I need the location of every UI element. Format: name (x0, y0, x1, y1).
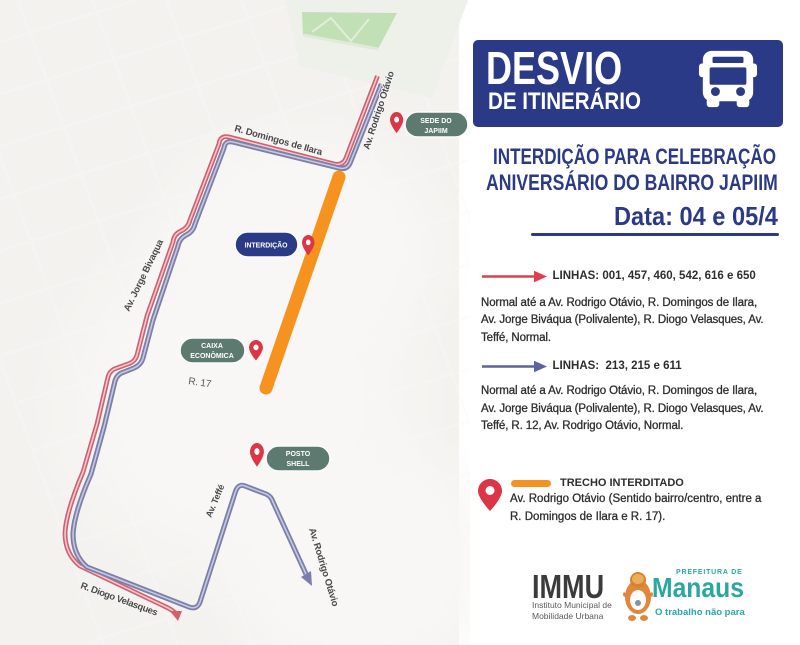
svg-text:SHELL: SHELL (287, 461, 311, 468)
svg-text:CAIXA: CAIXA (201, 343, 223, 350)
svg-text:ECONÔMICA: ECONÔMICA (190, 351, 234, 360)
svg-text:SEDE DO: SEDE DO (420, 118, 452, 125)
svg-text:POSTO: POSTO (286, 451, 311, 458)
svg-text:INTERDIÇÃO: INTERDIÇÃO (245, 241, 289, 250)
svg-text:JAPIIM: JAPIIM (424, 128, 448, 135)
